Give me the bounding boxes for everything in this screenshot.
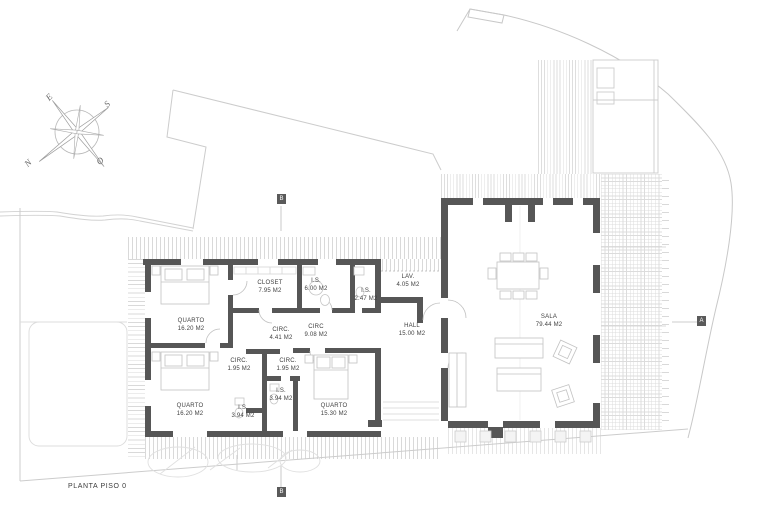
room-label-circ-195-left: CIRC. 1.95 M2 bbox=[227, 358, 250, 374]
room-area: 2.47 M2 bbox=[354, 296, 377, 304]
compass-rose-icon bbox=[15, 76, 136, 196]
room-area: 4.41 M2 bbox=[269, 335, 292, 343]
section-marker-b-bottom: B bbox=[277, 487, 286, 497]
room-label-sala: SALA 79.44 M2 bbox=[536, 314, 563, 330]
room-area: 9.08 M2 bbox=[304, 332, 327, 340]
room-area: 4.05 M2 bbox=[396, 282, 419, 290]
room-name: QUARTO bbox=[177, 403, 204, 411]
room-label-quarto-1: QUARTO 16.20 M2 bbox=[178, 318, 205, 334]
room-name: SALA bbox=[536, 314, 563, 322]
room-area: 1.95 M2 bbox=[227, 366, 250, 374]
room-name: CLOSET bbox=[257, 280, 282, 288]
room-area: 16.20 M2 bbox=[177, 411, 204, 419]
room-name: I.S. bbox=[354, 288, 377, 296]
room-area: 7.95 M2 bbox=[257, 288, 282, 296]
furniture-sala-lounge bbox=[449, 338, 577, 407]
furniture-quarto-3 bbox=[305, 355, 357, 399]
terrace-posts bbox=[455, 431, 591, 442]
room-area: 6.00 M2 bbox=[304, 286, 327, 294]
room-area: 15.30 M2 bbox=[321, 411, 348, 419]
walls bbox=[143, 198, 600, 438]
room-label-circ-441: CIRC. 4.41 M2 bbox=[269, 327, 292, 343]
room-name: LAV. bbox=[396, 274, 419, 282]
room-area: 3.94 M2 bbox=[231, 413, 254, 421]
plot-upper-boundary bbox=[167, 90, 441, 229]
section-marker-b-top: B bbox=[277, 194, 286, 204]
room-name: CIRC. bbox=[276, 358, 299, 366]
room-label-quarto-2: QUARTO 16.20 M2 bbox=[177, 403, 204, 419]
furniture-sala-dining bbox=[488, 253, 548, 299]
furniture-quarto-1 bbox=[152, 266, 218, 304]
room-name: CIRC. bbox=[227, 358, 250, 366]
room-label-closet: CLOSET 7.95 M2 bbox=[257, 280, 282, 296]
furniture-quarto-2 bbox=[152, 352, 218, 390]
room-area: 1.95 M2 bbox=[276, 366, 299, 374]
entry-steps bbox=[383, 402, 439, 420]
room-label-quarto-3: QUARTO 15.30 M2 bbox=[321, 403, 348, 419]
room-name: I.S. bbox=[304, 278, 327, 286]
room-label-lav: LAV. 4.05 M2 bbox=[396, 274, 419, 290]
room-area: 16.20 M2 bbox=[178, 326, 205, 334]
room-name: CIRC. bbox=[269, 327, 292, 335]
room-area: 79.44 M2 bbox=[536, 322, 563, 330]
site-plan-linework bbox=[0, 0, 768, 507]
dimension-lines bbox=[601, 247, 666, 326]
plan-title: PLANTA PISO 0 bbox=[68, 483, 127, 490]
section-marker-a: A bbox=[697, 316, 706, 326]
room-label-circ-195-right: CIRC. 1.95 M2 bbox=[276, 358, 299, 374]
room-label-circ-908: CIRC 9.08 M2 bbox=[304, 324, 327, 340]
room-name: QUARTO bbox=[178, 318, 205, 326]
room-name: I.S. bbox=[269, 388, 292, 396]
trees bbox=[148, 444, 320, 477]
room-label-is-247: I.S. 2.47 M2 bbox=[354, 288, 377, 304]
room-name: QUARTO bbox=[321, 403, 348, 411]
floor-plan-canvas: QUARTO 16.20 M2 CLOSET 7.95 M2 I.S. 6.00… bbox=[0, 0, 768, 507]
patio-outline bbox=[20, 322, 127, 446]
road-edge-lines bbox=[0, 211, 193, 231]
room-area: 15.00 M2 bbox=[399, 331, 426, 339]
room-label-hall: HALL 15.00 M2 bbox=[399, 323, 426, 339]
room-label-is-394-mid: I.S. 3.94 M2 bbox=[269, 388, 292, 404]
room-name: I.S. bbox=[231, 405, 254, 413]
room-label-is-394-left: I.S. 3.94 M2 bbox=[231, 405, 254, 421]
furniture-closet bbox=[234, 267, 296, 274]
room-label-is-600: I.S. 6.00 M2 bbox=[304, 278, 327, 294]
room-name: HALL bbox=[399, 323, 426, 331]
room-name: CIRC bbox=[304, 324, 327, 332]
annex-building bbox=[593, 60, 658, 173]
room-area: 3.94 M2 bbox=[269, 396, 292, 404]
